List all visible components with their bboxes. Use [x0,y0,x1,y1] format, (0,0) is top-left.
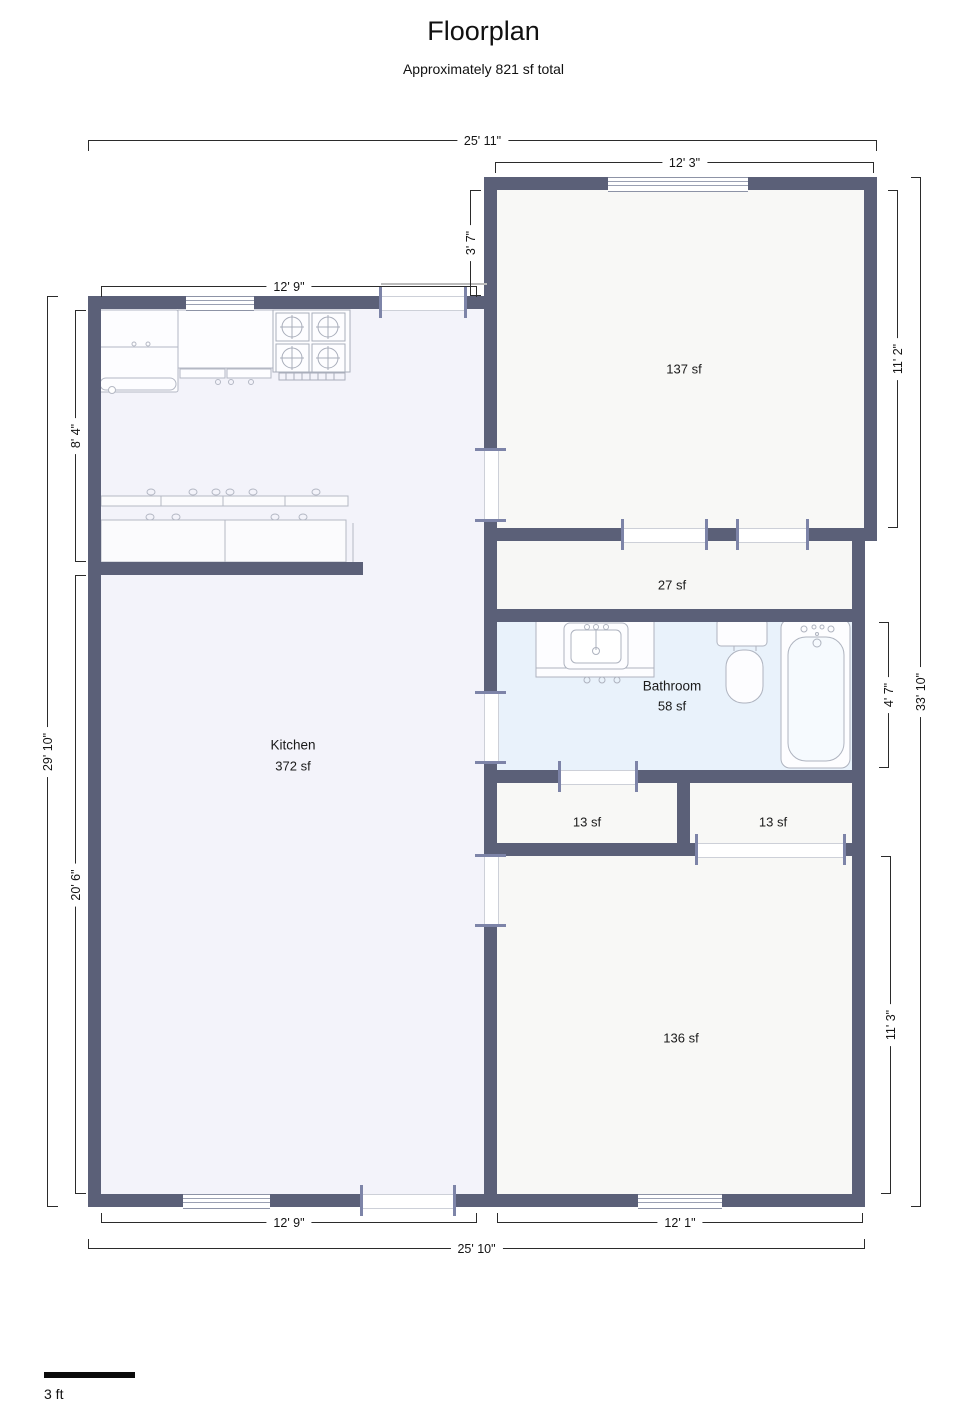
kitchen-area-label: 372 sf [275,759,310,774]
wall-segment [707,528,738,541]
door-opening [738,528,808,543]
door-opening [362,1194,455,1209]
dim-kitchen-bottom: 12' 9" [101,1222,477,1223]
wall-segment [722,1194,865,1207]
wall-segment [88,1194,183,1207]
dim-left-total: 29' 10" [47,296,48,1207]
threshold-line [381,283,487,285]
wall-segment [637,770,852,783]
door-jamb [379,287,382,318]
door-jamb [695,834,698,865]
wall-segment [88,296,101,1207]
hallway-area-label: 27 sf [658,578,686,593]
wall-segment [270,1194,362,1207]
window [608,177,748,192]
wall-segment [748,177,877,190]
wall-segment [484,177,608,190]
door-jamb [475,854,506,857]
floorplan-canvas: Floorplan Approximately 821 sf total [0,0,967,1414]
wall-segment [497,770,560,783]
door-jamb [635,761,638,792]
wall-segment [852,541,865,1207]
door-opening [484,693,499,763]
bathroom-name-label: Bathroom [643,679,702,694]
dim-connector-height: 3' 7" [470,190,471,296]
door-opening [484,856,499,926]
wall-segment [88,562,363,575]
wall-segment [864,177,877,541]
door-jamb [558,761,561,792]
door-jamb [475,448,506,451]
dim-bottom-total: 25' 10" [88,1248,865,1249]
door-jamb [464,287,467,318]
door-opening [623,528,707,543]
closet-left-area-label: 13 sf [573,815,601,830]
dim-bathroom-height: 4' 7" [888,622,889,768]
door-jamb [453,1185,456,1216]
wall-segment [808,528,877,541]
scale-bar [44,1372,135,1378]
wall-segment [845,843,852,856]
wall-segment [484,521,497,693]
wall-segment [497,609,852,622]
window [183,1194,270,1209]
dim-right-total: 33' 10" [920,177,921,1207]
kitchen-name-label: Kitchen [270,738,315,753]
room-136-area-label: 136 sf [663,1031,698,1046]
door-opening [381,296,466,311]
dim-top-room: 12' 3" [495,162,874,163]
door-jamb [475,924,506,927]
wall-segment [497,528,623,541]
wall-segment [484,177,497,450]
door-jamb [475,761,506,764]
dim-room137-height: 11' 2" [897,190,898,528]
door-opening [484,450,499,521]
wall-segment [677,783,690,843]
wall-segment [484,763,497,856]
wall-segment [497,843,697,856]
page-subtitle: Approximately 821 sf total [0,61,967,77]
dim-room136-height: 11' 3" [890,856,891,1194]
dim-kitchen-upper-height: 8' 4" [75,310,76,562]
wall-segment [88,296,186,309]
wall-segment [455,1194,638,1207]
wall-segment [254,296,381,309]
window [638,1194,722,1209]
hallway-floor [497,541,852,609]
closet-left-floor [497,783,677,843]
scale-bar-label: 3 ft [44,1386,63,1402]
dim-room136-bottom: 12' 1" [497,1222,863,1223]
door-jamb [705,519,708,550]
door-opening [560,770,637,785]
window [186,296,254,311]
dim-kitchen-top: 12' 9" [101,286,477,287]
dim-kitchen-lower-height: 20' 6" [75,575,76,1194]
door-jamb [806,519,809,550]
closet-right-floor [690,783,852,843]
door-jamb [360,1185,363,1216]
door-jamb [475,691,506,694]
door-opening [697,843,845,858]
dim-top-total: 25' 11" [88,140,877,141]
door-jamb [475,519,506,522]
door-jamb [843,834,846,865]
closet-right-area-label: 13 sf [759,815,787,830]
room-137-area-label: 137 sf [666,362,701,377]
door-jamb [736,519,739,550]
door-jamb [621,519,624,550]
wall-segment [484,926,497,1207]
room-137-floor [497,190,864,528]
bathroom-floor [497,622,852,770]
bathroom-area-label: 58 sf [658,699,686,714]
room-136-floor [497,856,852,1194]
page-title: Floorplan [0,16,967,47]
